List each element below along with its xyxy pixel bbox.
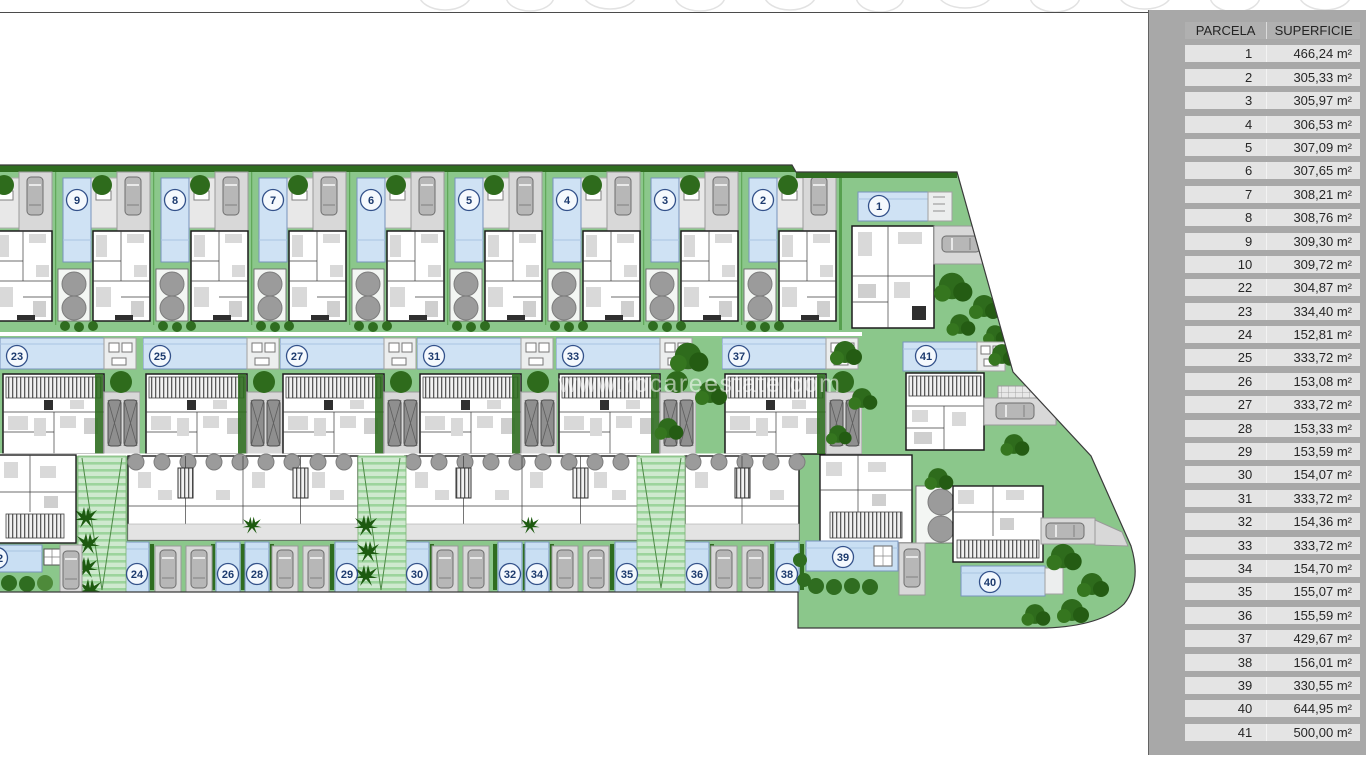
svg-text:40: 40 (984, 577, 996, 589)
parcel-row: 24152,81 m² (1185, 326, 1360, 343)
top-villa-row (0, 165, 839, 332)
svg-text:25: 25 (154, 351, 166, 363)
parcel-badge: 3 (655, 190, 676, 211)
svg-text:4: 4 (564, 195, 571, 207)
superficie-cell: 155,59 m² (1267, 607, 1360, 624)
svg-text:5: 5 (466, 195, 472, 207)
svg-text:31: 31 (428, 351, 440, 363)
path-row1-row2 (0, 332, 862, 336)
parcela-cell: 10 (1185, 256, 1267, 273)
superficie-cell: 156,01 m² (1267, 654, 1360, 671)
superficie-cell: 307,09 m² (1267, 139, 1360, 156)
parcel-row: 3305,97 m² (1185, 92, 1360, 109)
parcela-cell: 22 (1185, 279, 1267, 296)
svg-text:38: 38 (781, 569, 793, 581)
superficie-cell: 306,53 m² (1267, 116, 1360, 133)
parcela-cell: 35 (1185, 583, 1267, 600)
superficie-cell: 429,67 m² (1267, 630, 1360, 647)
parcela-cell: 4 (1185, 116, 1267, 133)
parcela-cell: 24 (1185, 326, 1267, 343)
svg-text:29: 29 (341, 569, 353, 581)
parcel-row: 7308,21 m² (1185, 186, 1360, 203)
superficie-cell: 153,33 m² (1267, 420, 1360, 437)
parcel-badge: 40 (980, 572, 1001, 593)
parcel-badge: 2 (753, 190, 774, 211)
parcela-cell: 7 (1185, 186, 1267, 203)
superficie-cell: 333,72 m² (1267, 349, 1360, 366)
superficie-cell: 644,95 m² (1267, 700, 1360, 717)
header-superficie: SUPERFICIE (1267, 22, 1360, 39)
superficie-cell: 305,97 m² (1267, 92, 1360, 109)
parcel-row: 31333,72 m² (1185, 490, 1360, 507)
screenshot-stage: 9876543212325273133374122242628293032343… (0, 0, 1366, 768)
parcela-cell: 34 (1185, 560, 1267, 577)
parcel-badge: 28 (247, 564, 268, 585)
svg-text:6: 6 (368, 195, 374, 207)
parcel-badge: 35 (617, 564, 638, 585)
parcela-cell: 33 (1185, 537, 1267, 554)
parcel-row: 39330,55 m² (1185, 677, 1360, 694)
parcel-badge: 26 (218, 564, 239, 585)
svg-text:41: 41 (920, 351, 932, 363)
parcel-badge: 30 (407, 564, 428, 585)
parcel-badge: 6 (361, 190, 382, 211)
parcel-badge: 1 (869, 196, 890, 217)
superficie-cell: 305,33 m² (1267, 69, 1360, 86)
parcela-cell: 30 (1185, 466, 1267, 483)
parcel-row: 10309,72 m² (1185, 256, 1360, 273)
parcel-badge: 4 (557, 190, 578, 211)
superficie-cell: 308,76 m² (1267, 209, 1360, 226)
superficie-cell: 154,70 m² (1267, 560, 1360, 577)
superficie-cell: 466,24 m² (1267, 45, 1360, 62)
parcela-cell: 37 (1185, 630, 1267, 647)
parcel-row: 1466,24 m² (1185, 45, 1360, 62)
parcel-badge: 7 (263, 190, 284, 211)
svg-text:32: 32 (504, 569, 516, 581)
table-body: 1466,24 m²2305,33 m²3305,97 m²4306,53 m²… (1185, 45, 1360, 740)
svg-text:37: 37 (733, 351, 745, 363)
parcela-cell: 40 (1185, 700, 1267, 717)
parcela-cell: 23 (1185, 303, 1267, 320)
parcel-row: 29153,59 m² (1185, 443, 1360, 460)
parcel-badge: 8 (165, 190, 186, 211)
superficie-cell: 333,72 m² (1267, 396, 1360, 413)
svg-text:33: 33 (567, 351, 579, 363)
header-parcela: PARCELA (1185, 22, 1267, 39)
superficie-cell: 307,65 m² (1267, 162, 1360, 179)
parcela-cell: 29 (1185, 443, 1267, 460)
parcel-row: 5307,09 m² (1185, 139, 1360, 156)
parcel-badge: 33 (563, 346, 584, 367)
parcela-cell: 28 (1185, 420, 1267, 437)
parcel-row: 25333,72 m² (1185, 349, 1360, 366)
svg-text:8: 8 (172, 195, 178, 207)
superficie-cell: 308,21 m² (1267, 186, 1360, 203)
svg-text:22: 22 (0, 553, 3, 565)
parcel-row: 26153,08 m² (1185, 373, 1360, 390)
parcela-cell: 8 (1185, 209, 1267, 226)
svg-text:35: 35 (621, 569, 633, 581)
superficie-cell: 333,72 m² (1267, 490, 1360, 507)
superficie-cell: 154,36 m² (1267, 513, 1360, 530)
superficie-cell: 153,08 m² (1267, 373, 1360, 390)
superficie-cell: 153,59 m² (1267, 443, 1360, 460)
parcel-row: 33333,72 m² (1185, 537, 1360, 554)
parcel-row: 37429,67 m² (1185, 630, 1360, 647)
parcel-badge: 29 (337, 564, 358, 585)
parcel-badge: 27 (287, 346, 308, 367)
superficie-cell: 309,72 m² (1267, 256, 1360, 273)
parcel-badge: 23 (7, 346, 28, 367)
parcel-row: 30154,07 m² (1185, 466, 1360, 483)
svg-text:23: 23 (11, 351, 23, 363)
parcel-row: 28153,33 m² (1185, 420, 1360, 437)
bottom-duplex-blocks (128, 454, 805, 540)
parcela-cell: 27 (1185, 396, 1267, 413)
parcel-row: 8308,76 m² (1185, 209, 1360, 226)
svg-text:30: 30 (411, 569, 423, 581)
svg-text:2: 2 (760, 195, 766, 207)
parcel-row: 36155,59 m² (1185, 607, 1360, 624)
superficie-cell: 334,40 m² (1267, 303, 1360, 320)
svg-text:3: 3 (662, 195, 668, 207)
parcel-row: 35155,07 m² (1185, 583, 1360, 600)
parcel-badge: 34 (527, 564, 548, 585)
superficie-cell: 152,81 m² (1267, 326, 1360, 343)
parcel-badge: 36 (687, 564, 708, 585)
parcel-badge: 25 (150, 346, 171, 367)
parcel-badge: 41 (916, 346, 937, 367)
parcel-badge: 9 (67, 190, 88, 211)
svg-text:24: 24 (131, 569, 144, 581)
svg-text:26: 26 (222, 569, 234, 581)
svg-text:9: 9 (74, 195, 80, 207)
parcela-cell: 26 (1185, 373, 1267, 390)
parcela-cell: 5 (1185, 139, 1267, 156)
parcel-row: 41500,00 m² (1185, 724, 1360, 741)
site-plan: 9876543212325273133374122242628293032343… (0, 0, 1152, 768)
table-header-row: PARCELA SUPERFICIE (1185, 22, 1360, 39)
parcel-row: 9309,30 m² (1185, 233, 1360, 250)
parcel-row: 22304,87 m² (1185, 279, 1360, 296)
parcel-table-panel: PARCELA SUPERFICIE 1466,24 m²2305,33 m²3… (1148, 10, 1366, 755)
parcel-row: 32154,36 m² (1185, 513, 1360, 530)
superficie-cell: 304,87 m² (1267, 279, 1360, 296)
parcela-cell: 31 (1185, 490, 1267, 507)
parcela-cell: 9 (1185, 233, 1267, 250)
svg-text:36: 36 (691, 569, 703, 581)
svg-text:7: 7 (270, 195, 276, 207)
parcela-cell: 39 (1185, 677, 1267, 694)
parcela-cell: 38 (1185, 654, 1267, 671)
parcela-cell: 3 (1185, 92, 1267, 109)
parcel-table: PARCELA SUPERFICIE 1466,24 m²2305,33 m²3… (1185, 22, 1360, 747)
parcel-row: 2305,33 m² (1185, 69, 1360, 86)
svg-text:39: 39 (837, 552, 849, 564)
superficie-cell: 333,72 m² (1267, 537, 1360, 554)
superficie-cell: 154,07 m² (1267, 466, 1360, 483)
parcela-cell: 32 (1185, 513, 1267, 530)
superficie-cell: 155,07 m² (1267, 583, 1360, 600)
watermark-text: www.rocareestate.com (558, 370, 842, 398)
parcel-row: 38156,01 m² (1185, 654, 1360, 671)
parcela-cell: 2 (1185, 69, 1267, 86)
svg-text:27: 27 (291, 351, 303, 363)
parcel-badge: 5 (459, 190, 480, 211)
parcel-badge: 24 (127, 564, 148, 585)
parcela-cell: 1 (1185, 45, 1267, 62)
parcel-row: 23334,40 m² (1185, 303, 1360, 320)
parcela-cell: 41 (1185, 724, 1267, 741)
parcela-cell: 25 (1185, 349, 1267, 366)
parcel-row: 6307,65 m² (1185, 162, 1360, 179)
parcel-badge: 31 (424, 346, 445, 367)
superficie-cell: 309,30 m² (1267, 233, 1360, 250)
svg-text:1: 1 (876, 201, 882, 213)
parcel-row: 4306,53 m² (1185, 116, 1360, 133)
parcel-row: 34154,70 m² (1185, 560, 1360, 577)
svg-text:34: 34 (531, 569, 544, 581)
svg-text:28: 28 (251, 569, 263, 581)
superficie-cell: 330,55 m² (1267, 677, 1360, 694)
parcel-row: 27333,72 m² (1185, 396, 1360, 413)
parcel-badge: 39 (833, 547, 854, 568)
parcela-cell: 6 (1185, 162, 1267, 179)
parcel-badge: 32 (500, 564, 521, 585)
superficie-cell: 500,00 m² (1267, 724, 1360, 741)
parcel-badge: 38 (777, 564, 798, 585)
parcela-cell: 36 (1185, 607, 1267, 624)
parcel-row: 40644,95 m² (1185, 700, 1360, 717)
parcel-badge: 37 (729, 346, 750, 367)
